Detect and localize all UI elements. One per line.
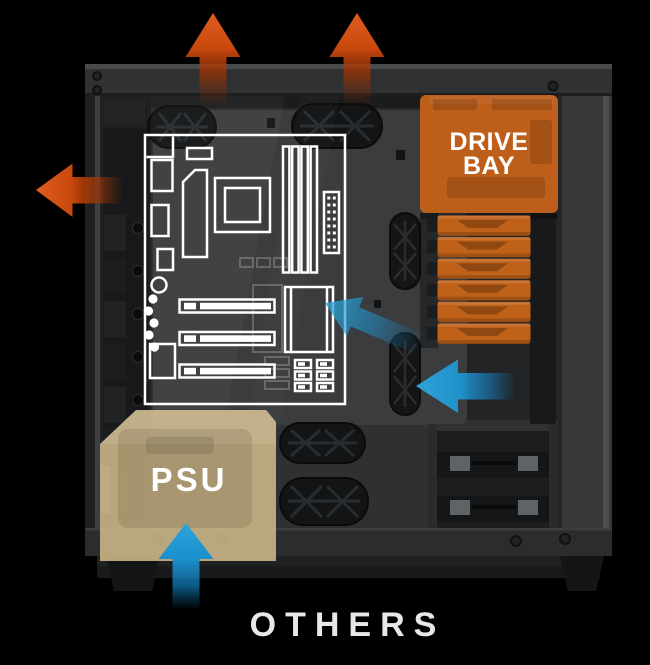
interior-dark-channel: [530, 210, 556, 432]
case-foot-left: [106, 556, 160, 591]
drive-bay-label-line2: BAY: [420, 154, 558, 178]
case-foot-right: [560, 556, 604, 591]
ssd-drive-cage: [428, 424, 558, 528]
diagram-canvas: [0, 0, 650, 665]
pc-case-airflow-diagram: DRIVE BAY PSU OTHERS: [0, 0, 650, 665]
psu-label: PSU: [130, 460, 248, 500]
psu-label-text: PSU: [151, 461, 228, 499]
routing-hole: [396, 150, 405, 160]
drive-bay-label: DRIVE BAY: [420, 130, 558, 178]
routing-hole: [374, 300, 381, 308]
others-caption-text: OTHERS: [250, 606, 446, 644]
drive-bay-label-line1: DRIVE: [420, 130, 558, 154]
cable-grommet-upper: [390, 213, 420, 289]
bottom-vent-upper: [280, 423, 365, 463]
others-caption: OTHERS: [170, 606, 525, 645]
front-panel-column: [558, 96, 612, 530]
bottom-vent-lower: [280, 478, 368, 525]
